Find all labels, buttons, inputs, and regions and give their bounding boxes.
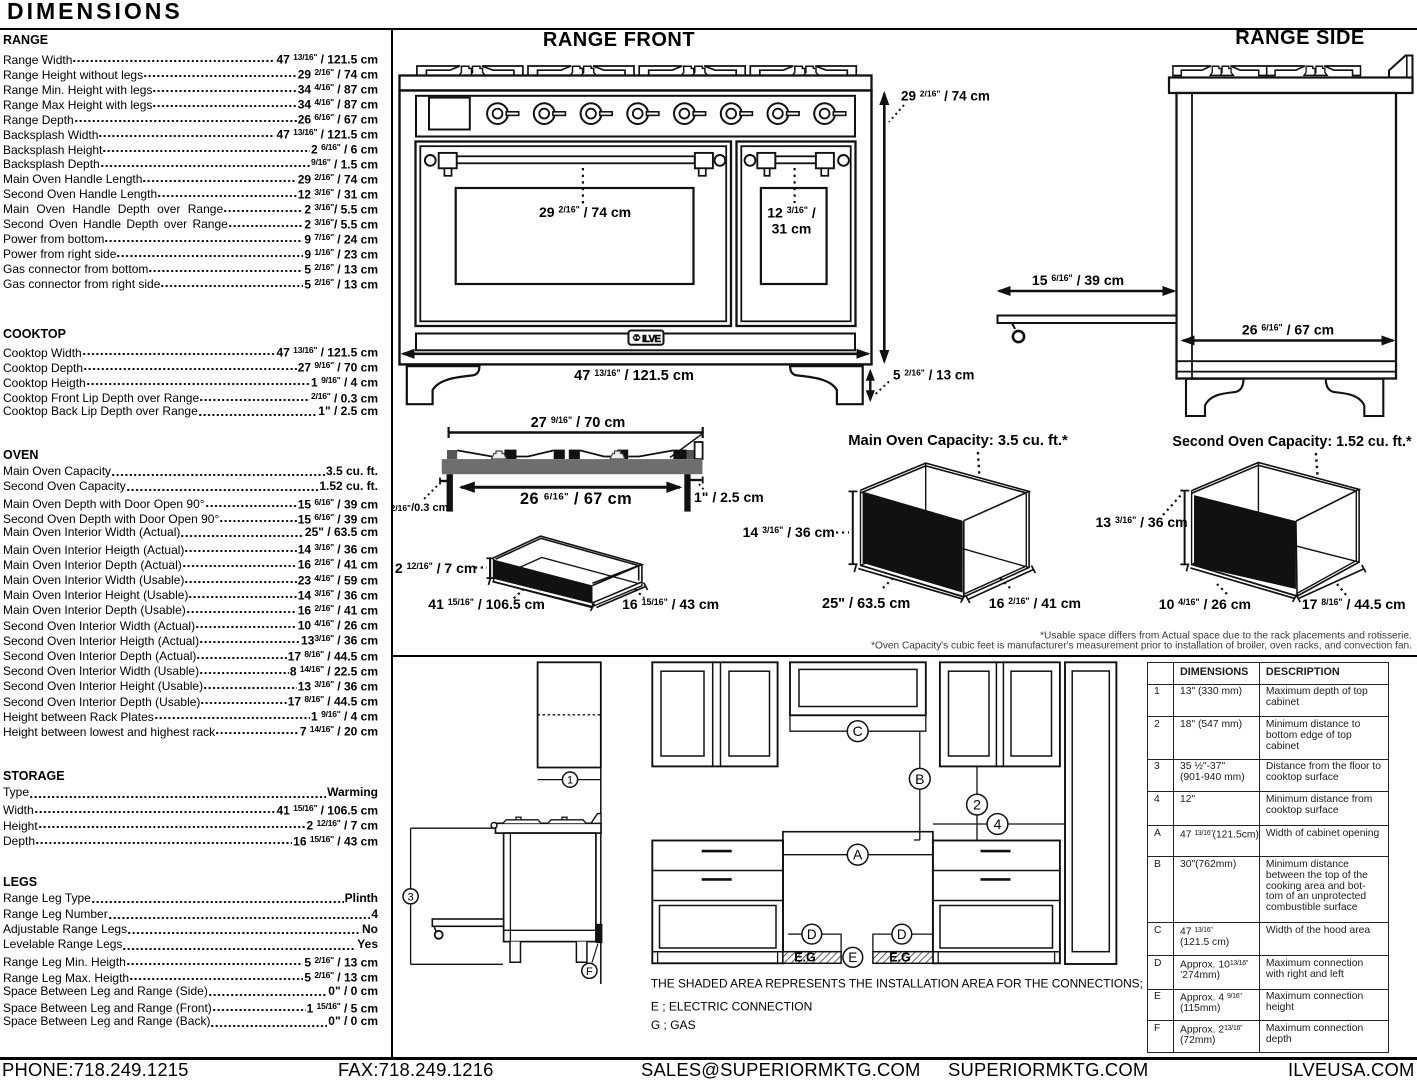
svg-text:Main Oven Capacity: 3.5 cu. ft: Main Oven Capacity: 3.5 cu. ft.* bbox=[848, 433, 1068, 449]
svg-text:THE SHADED AREA REPRESENTS THE: THE SHADED AREA REPRESENTS THE INSTALLAT… bbox=[651, 977, 1143, 991]
svg-text:26 6/16" / 67 cm: 26 6/16" / 67 cm bbox=[1242, 322, 1334, 338]
svg-text:E.G: E.G bbox=[794, 951, 816, 965]
svg-text:B: B bbox=[915, 771, 924, 787]
svg-text:15 6/16" / 39 cm: 15 6/16" / 39 cm bbox=[1032, 272, 1124, 288]
svg-text:29 2/16" / 74 cm: 29 2/16" / 74 cm bbox=[901, 89, 990, 104]
svg-text:G ; GAS: G ; GAS bbox=[651, 1018, 696, 1032]
svg-text:16 15/16" / 43 cm: 16 15/16" / 43 cm bbox=[622, 596, 719, 612]
svg-text:D: D bbox=[897, 927, 907, 942]
svg-text:2: 2 bbox=[973, 797, 981, 813]
svg-text:1: 1 bbox=[567, 775, 573, 787]
svg-text:4: 4 bbox=[994, 816, 1002, 832]
svg-text:13 3/16" / 36 cm: 13 3/16" / 36 cm bbox=[1096, 514, 1188, 530]
svg-text:10 4/16" / 26 cm: 10 4/16" / 26 cm bbox=[1159, 596, 1251, 612]
svg-text:16 2/16" / 41 cm: 16 2/16" / 41 cm bbox=[989, 595, 1081, 611]
svg-text:47 13/16" / 121.5 cm: 47 13/16" / 121.5 cm bbox=[574, 368, 694, 384]
svg-text:41 15/16" / 106.5 cm: 41 15/16" / 106.5 cm bbox=[428, 596, 544, 612]
svg-text:2/16"/0.3 cm: 2/16"/0.3 cm bbox=[391, 502, 449, 514]
svg-text:*Oven Capacity's cubic feet is: *Oven Capacity's cubic feet is manufactu… bbox=[871, 641, 1412, 652]
svg-text:ILVE: ILVE bbox=[642, 334, 661, 345]
svg-text:5 2/16" / 13 cm: 5 2/16" / 13 cm bbox=[893, 368, 974, 383]
svg-text:17 8/16" / 44.5 cm: 17 8/16" / 44.5 cm bbox=[1302, 596, 1406, 612]
svg-text:27 9/16" / 70 cm: 27 9/16" / 70 cm bbox=[531, 415, 626, 431]
svg-text:D: D bbox=[807, 927, 817, 942]
svg-text:RANGE FRONT: RANGE FRONT bbox=[543, 29, 695, 51]
svg-text:31 cm: 31 cm bbox=[772, 221, 812, 237]
svg-text:25" / 63.5 cm: 25" / 63.5 cm bbox=[822, 596, 910, 612]
svg-text:E ; ELECTRIC CONNECTION: E ; ELECTRIC CONNECTION bbox=[651, 1000, 812, 1014]
svg-text:2 12/16" / 7 cm: 2 12/16" / 7 cm bbox=[395, 560, 476, 576]
svg-text:Second Oven Capacity: 1.52 cu.: Second Oven Capacity: 1.52 cu. ft.* bbox=[1172, 434, 1412, 450]
svg-text:26 6/16" / 67 cm: 26 6/16" / 67 cm bbox=[520, 490, 632, 508]
svg-text:3: 3 bbox=[408, 891, 414, 903]
svg-text:E: E bbox=[848, 950, 857, 965]
svg-text:A: A bbox=[853, 847, 863, 863]
svg-text:C: C bbox=[853, 723, 863, 739]
svg-text:14 3/16" / 36 cm: 14 3/16" / 36 cm bbox=[743, 524, 835, 540]
svg-text:29 2/16" / 74 cm: 29 2/16" / 74 cm bbox=[539, 204, 631, 220]
svg-text:RANGE SIDE: RANGE SIDE bbox=[1235, 27, 1364, 49]
svg-text:F: F bbox=[586, 966, 593, 978]
svg-text:E.G: E.G bbox=[889, 951, 911, 965]
svg-text:1" / 2.5 cm: 1" / 2.5 cm bbox=[694, 489, 764, 505]
